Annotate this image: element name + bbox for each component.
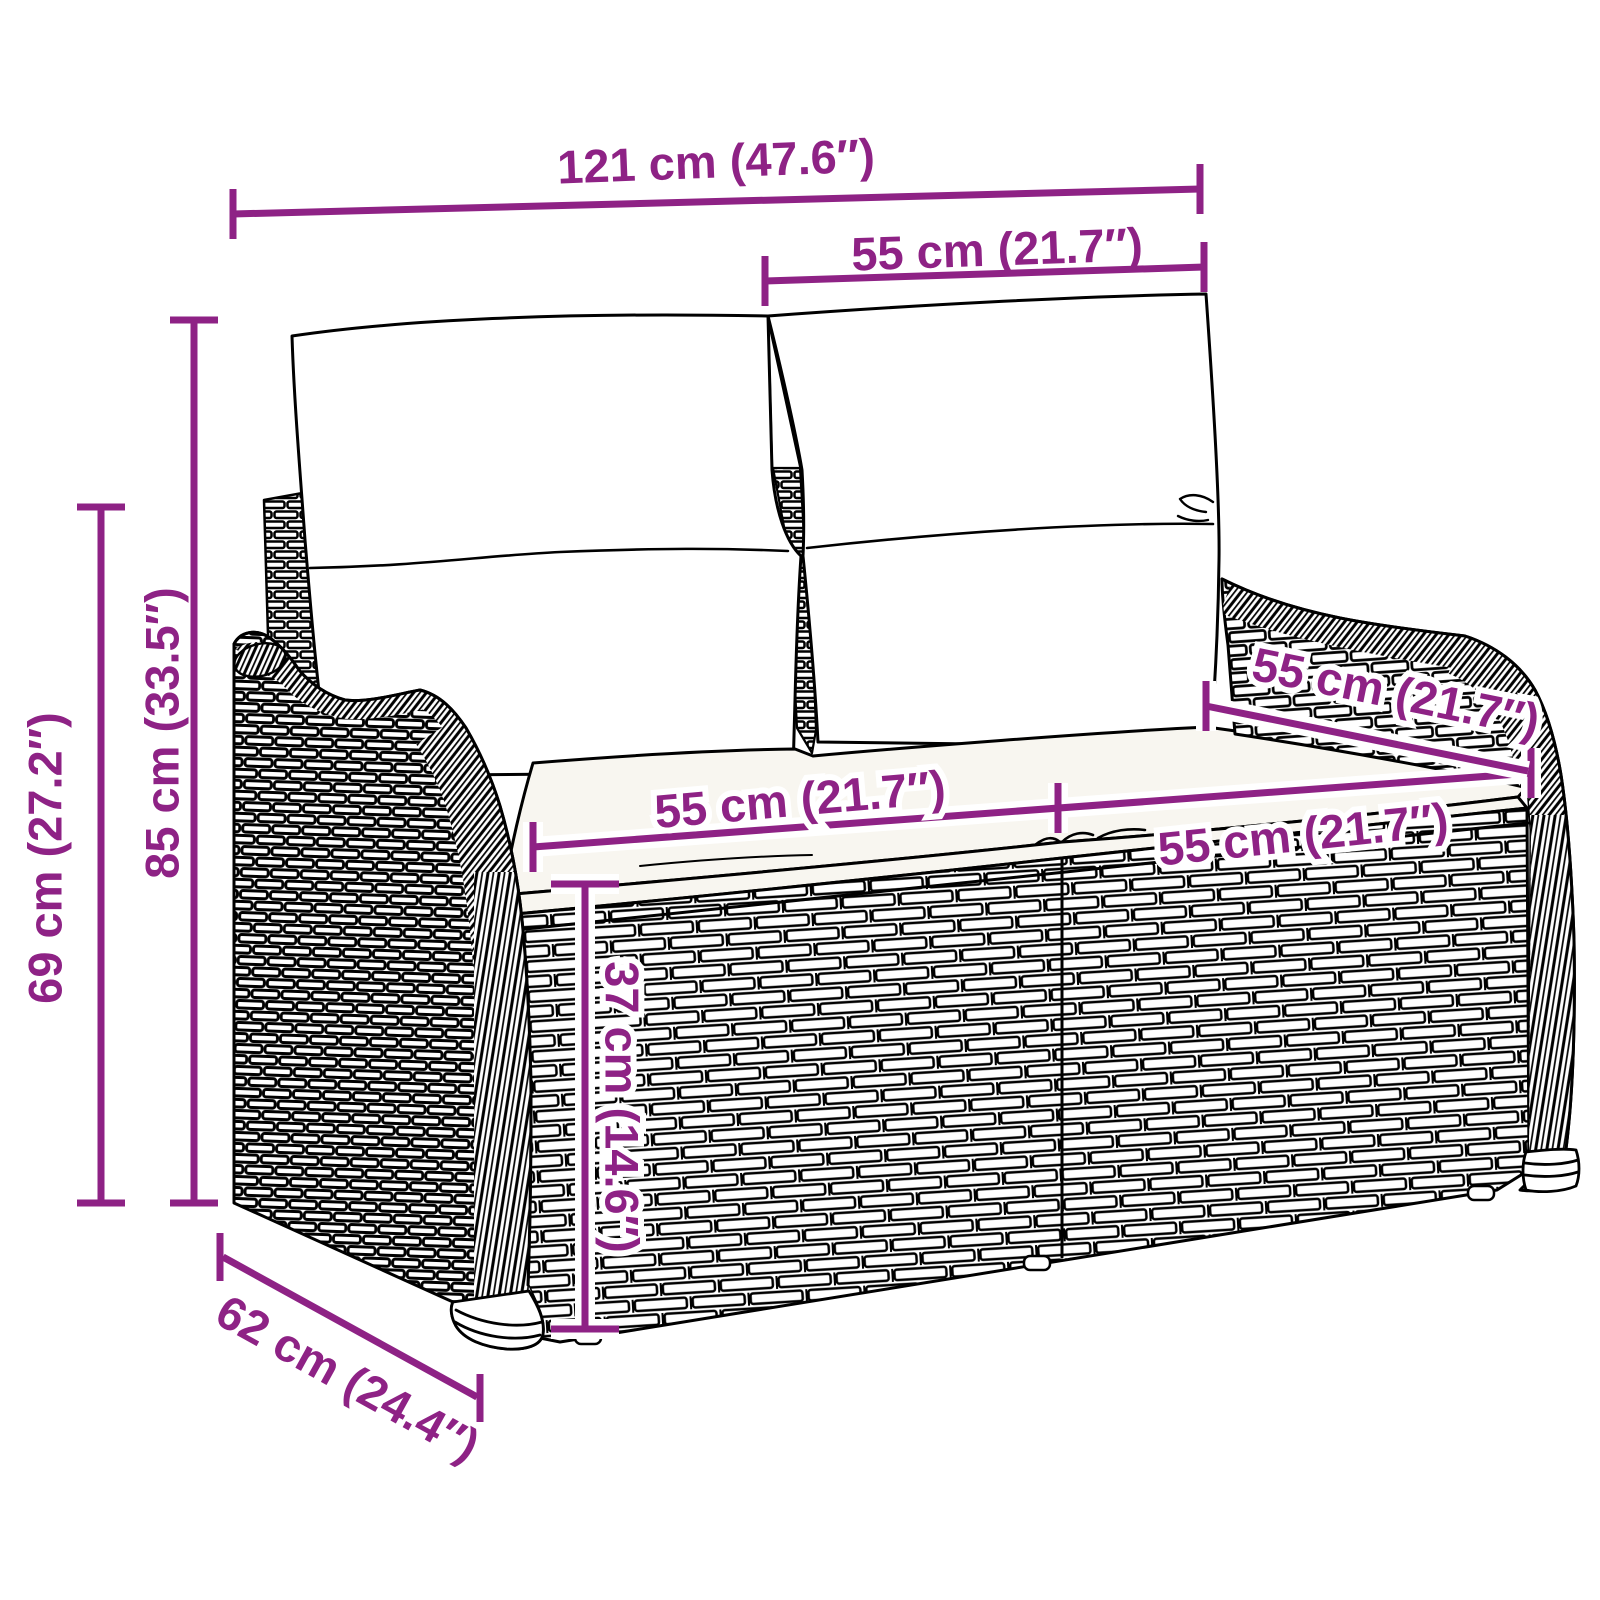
svg-text:55 cm (21.7″): 55 cm (21.7″) bbox=[850, 217, 1143, 280]
svg-text:69 cm (27.2″): 69 cm (27.2″) bbox=[19, 712, 72, 1004]
svg-text:85 cm (33.5″): 85 cm (33.5″) bbox=[136, 587, 189, 879]
svg-text:37 cm (14.6″): 37 cm (14.6″) bbox=[596, 961, 649, 1253]
